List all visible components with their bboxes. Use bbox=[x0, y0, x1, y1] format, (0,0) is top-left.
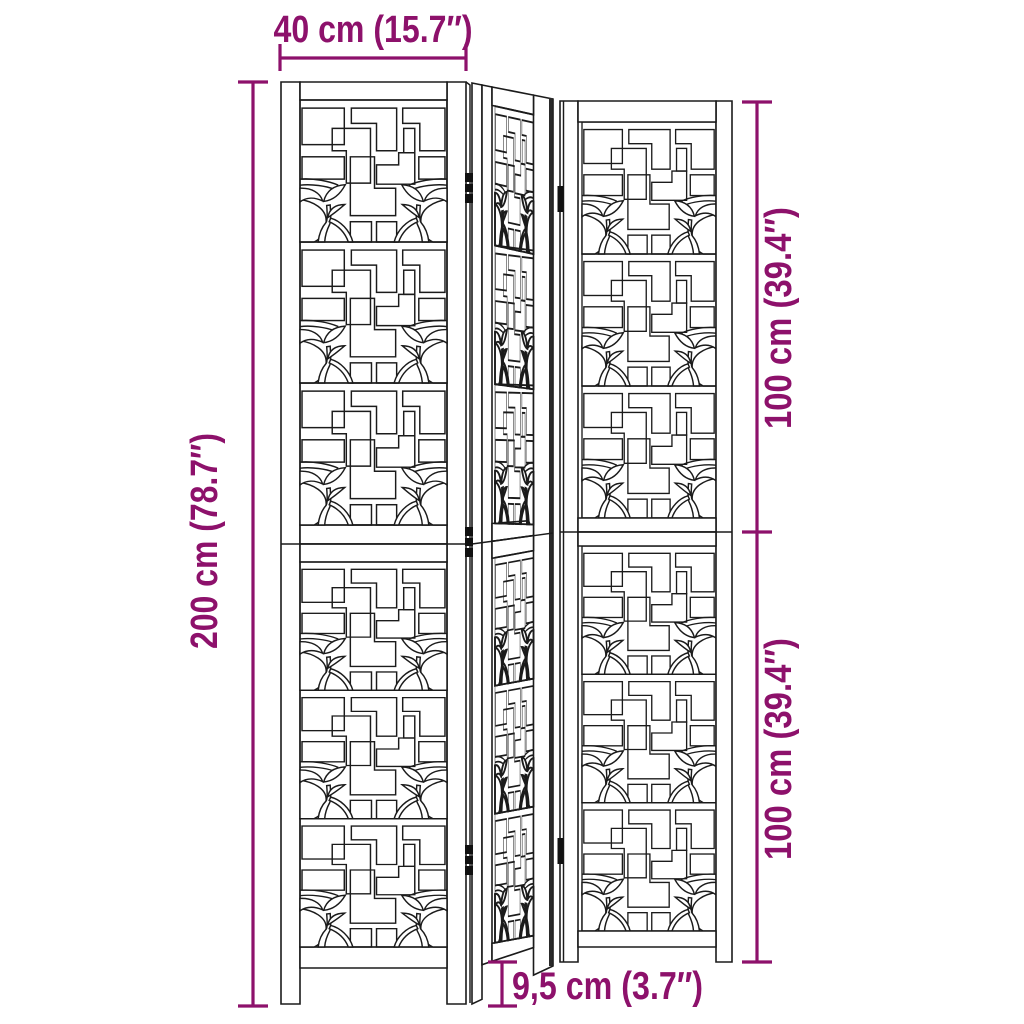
svg-text:100 cm (39.4″): 100 cm (39.4″) bbox=[758, 207, 800, 429]
svg-text:200 cm (78.7″): 200 cm (78.7″) bbox=[184, 433, 226, 649]
svg-text:9,5 cm (3.7″): 9,5 cm (3.7″) bbox=[512, 965, 703, 1008]
svg-text:100 cm (39.4″): 100 cm (39.4″) bbox=[758, 638, 800, 860]
svg-text:40 cm (15.7″): 40 cm (15.7″) bbox=[274, 9, 473, 51]
